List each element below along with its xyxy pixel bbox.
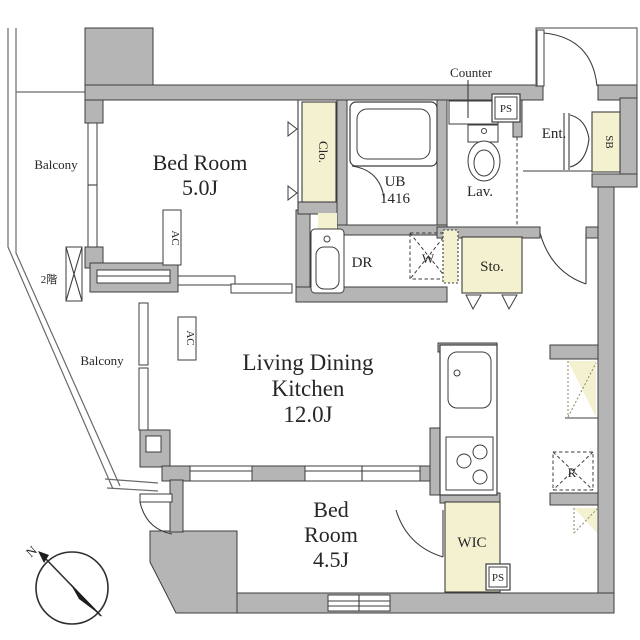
wall-bottom-band — [176, 593, 614, 613]
shoe-box-label: SB — [603, 135, 615, 148]
wall-ub-right — [437, 100, 447, 233]
pipe-space-bottom-label: PS — [492, 572, 504, 584]
entrance-door-arc — [544, 33, 597, 86]
wall-bottom-left-pentagon — [150, 531, 237, 613]
balcony-door-leaf — [140, 494, 172, 502]
balcony-upper-label: Balcony — [34, 157, 78, 172]
wall-right-stub-lower — [550, 493, 598, 505]
ldk-size-label: 12.0J — [283, 402, 332, 427]
kitchen-sink — [448, 352, 491, 408]
washing-machine-label: W — [422, 251, 435, 266]
wall-right-main — [598, 187, 614, 613]
closet-door-pivot-2 — [288, 186, 297, 200]
entrance-label: Ent. — [542, 126, 567, 142]
storage-door-pivot-2 — [502, 295, 517, 309]
balcony-end-line-2 — [107, 488, 158, 491]
burner-2 — [473, 445, 487, 459]
storage-label: Sto. — [480, 259, 504, 275]
storage-door-pivot-1 — [466, 295, 481, 309]
bathtub-inner — [357, 109, 430, 159]
right-side-shelves — [553, 361, 598, 533]
floor-plan: Balcony Balcony 2階 — [0, 0, 640, 640]
ac-2-label: AC — [184, 330, 196, 345]
refrigerator-label: R — [568, 465, 577, 480]
closet-label: Clo. — [316, 141, 331, 163]
entrance-door-leaf — [537, 30, 544, 86]
unit-bath-size-label: 1416 — [380, 191, 411, 207]
balcony-lower-label: Balcony — [80, 353, 124, 368]
toilet-bowl-inner — [474, 150, 494, 176]
bedroom1-name-label: Bed Room — [153, 150, 248, 175]
vanity-shelf — [318, 213, 337, 229]
pipe-space-top-label: PS — [500, 103, 512, 115]
bedroom1-sliding-door-2 — [231, 284, 292, 293]
sb-door-arc-top — [570, 115, 589, 139]
burner-3 — [473, 470, 487, 484]
balcony-door-arc — [140, 502, 172, 534]
closet-door-pivot-1 — [288, 122, 297, 136]
sb-door-arc-bottom — [570, 139, 589, 167]
floor-plan-page: Balcony Balcony 2階 — [0, 0, 640, 640]
wall-right-stub-upper — [550, 345, 598, 359]
bedroom2-name-line1: Bed — [313, 497, 348, 522]
entrance-porch — [536, 28, 637, 87]
bedroom2-name-line2: Room — [304, 522, 358, 547]
kitchen — [440, 345, 497, 495]
wall-below-sb — [592, 174, 637, 187]
linen-shelf-strip — [443, 230, 458, 283]
unit-bath-label: UB — [385, 174, 406, 190]
ldk-window-1 — [139, 303, 148, 365]
ldk-window-2 — [139, 368, 148, 430]
ac-1-label: AC — [169, 230, 181, 245]
wall-center-chunk — [296, 210, 310, 293]
bedroom1-size-label: 5.0J — [182, 175, 219, 200]
compass-north-label: N — [23, 542, 40, 560]
counter-label: Counter — [450, 65, 493, 80]
wall-top-band — [85, 85, 543, 100]
lav-counter — [449, 101, 498, 124]
balcony-end-line-1 — [105, 479, 158, 483]
bedroom1-sliding-door-1 — [178, 276, 235, 285]
dressing-room-label: DR — [352, 255, 373, 271]
porch-outline — [536, 28, 637, 87]
sink-faucet — [454, 370, 460, 376]
lavatory-label: Lav. — [467, 184, 493, 200]
ldk-name-line2: Kitchen — [272, 376, 345, 401]
burner-1 — [457, 454, 471, 468]
vanity-faucet — [324, 236, 330, 242]
ldk-left-niche — [146, 436, 161, 452]
toilet-flush-button — [482, 129, 487, 134]
balcony-access-door — [140, 494, 172, 534]
wall-bedroom2-left — [170, 480, 183, 532]
bedroom2-sliding-1 — [190, 466, 252, 481]
balcony-partition — [66, 247, 82, 301]
vanity-bowl — [316, 247, 339, 289]
wall-left-top — [85, 100, 103, 123]
wall-hall-band-stub — [586, 227, 598, 238]
hall-ldk-door-arc — [540, 233, 586, 284]
wic-door-arc — [396, 510, 443, 557]
wic-label: WIC — [457, 535, 486, 551]
compass: N — [23, 542, 108, 624]
ldk-name-line1: Living Dining — [243, 350, 374, 375]
floor-note-label: 2階 — [41, 272, 58, 286]
bedroom2-size-label: 4.5J — [313, 547, 350, 572]
wall-kitchen-left-stub — [430, 428, 440, 495]
wall-ub-left — [337, 100, 347, 233]
